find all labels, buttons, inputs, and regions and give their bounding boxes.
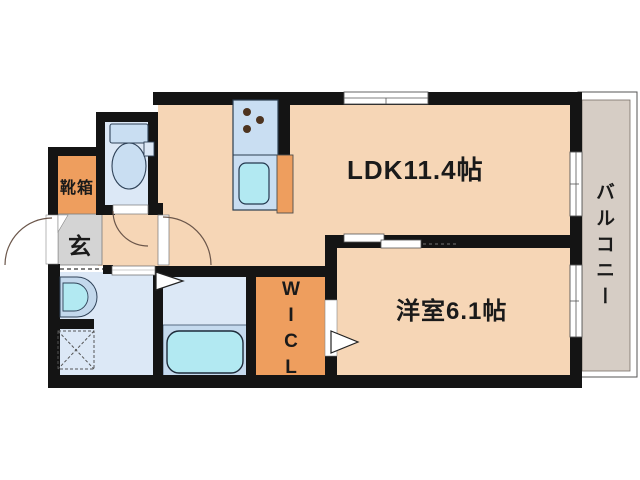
wall-bedroom-left-lower [325,356,337,376]
stove-burner [256,116,264,124]
wall-toilet-door-stub-right [148,203,163,215]
kitchen-counter [233,100,278,210]
stove-burner [243,125,251,133]
floor-plan-drawing [0,0,640,480]
stove-burner [243,108,251,116]
toilet-door-leaf [113,205,148,214]
wall-right-upper [570,92,582,153]
entrance-label: 玄 [68,227,91,261]
wall-toilet-top [96,112,157,122]
floor-plan: LDK11.4帖 洋室6.1帖 バルコニー 玄 靴箱 W I C L [0,0,640,480]
sliding-door-washroom [112,266,155,275]
wicl-label: W I C L [256,277,326,381]
wicl-label-line: L [256,355,326,381]
refrigerator-space [277,155,293,213]
wall-toilet-left [96,112,105,215]
window-ldk-balcony [570,152,582,216]
shoe-box-label: 靴箱 [60,174,94,198]
wicl-label-line: I [256,303,326,329]
wicl-label-line: W [256,277,326,303]
window-bedroom-balcony [570,265,582,337]
bedroom-room-label: 洋室6.1帖 [396,291,507,326]
balcony-label: バルコニー [590,182,617,312]
bathtub [167,331,243,373]
wall-right-lower [570,337,582,388]
wicl-label-line: C [256,329,326,355]
ldk-room-label: LDK11.4帖 [347,150,484,187]
kitchen-sink [239,163,269,204]
wall-shoebox-left [48,147,58,215]
window-top [344,92,428,104]
wall-vanity-separator [58,319,94,329]
wall-wicl-left [246,266,256,376]
wall-toilet-door-stub-left [96,205,115,215]
wall-bedroom-left-upper [325,248,337,300]
wall-hallway-stub [103,265,113,274]
wash-basin [60,277,97,317]
wall-toilet-right [148,112,158,215]
front-door-opening [46,215,58,264]
ldk-door-leaf [158,215,169,265]
front-door-swing-arc [5,218,52,265]
